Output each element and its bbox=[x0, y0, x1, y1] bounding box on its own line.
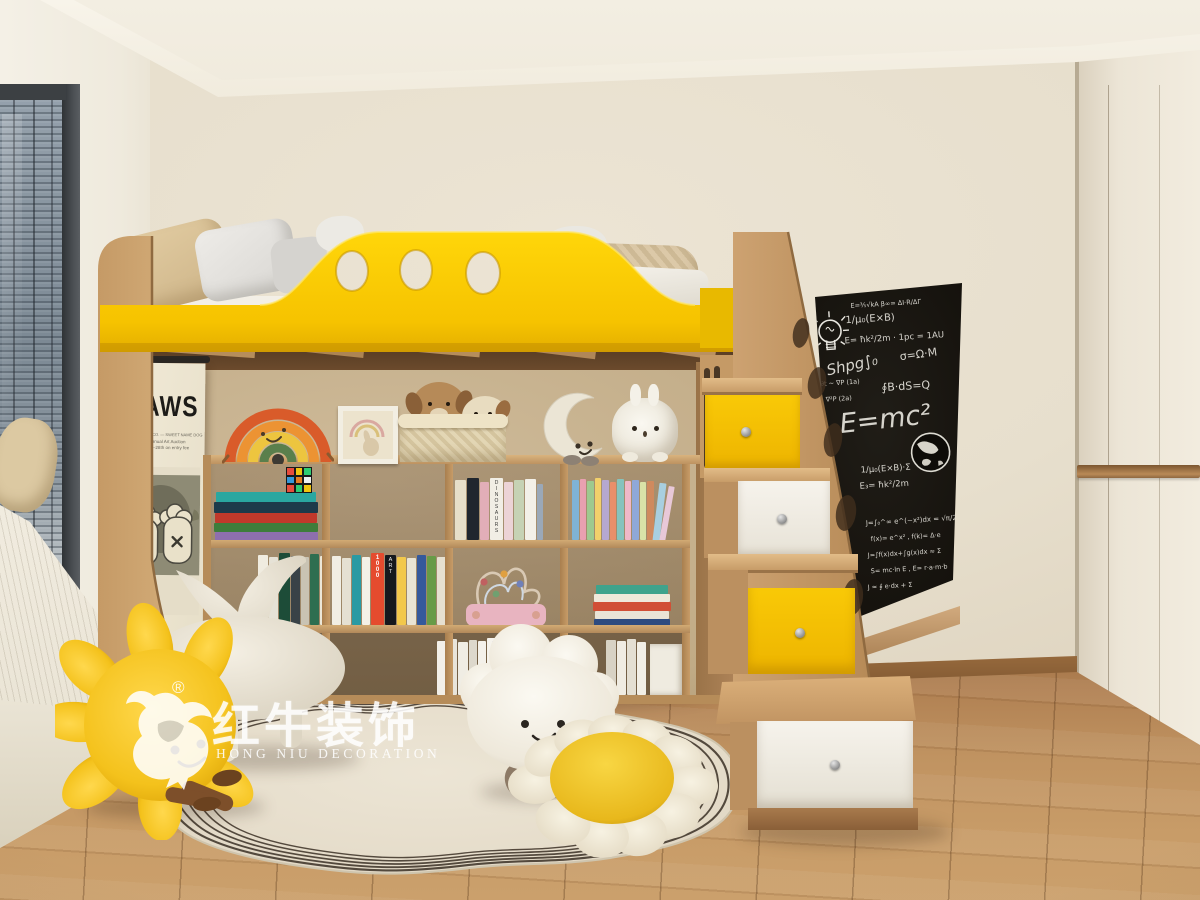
book-spine[interactable] bbox=[637, 642, 646, 695]
book-spine[interactable] bbox=[214, 502, 318, 513]
book-spine[interactable] bbox=[640, 482, 646, 540]
book-spine[interactable] bbox=[215, 513, 317, 523]
rabbit-ear bbox=[648, 384, 659, 406]
book-spine[interactable] bbox=[617, 479, 624, 540]
storage-basket[interactable] bbox=[400, 424, 506, 462]
stair-wood-filler bbox=[704, 482, 738, 558]
book-spine[interactable] bbox=[610, 482, 616, 540]
book-spine[interactable] bbox=[427, 556, 436, 625]
book-spine-label: 1000 bbox=[375, 555, 381, 579]
watermark-brand-en: HONG NIU DECORATION bbox=[216, 746, 440, 762]
shelf-divider bbox=[445, 464, 453, 703]
book-spine[interactable] bbox=[587, 481, 594, 540]
book-spine-dinosaurs[interactable]: DINOSAURS bbox=[490, 478, 503, 540]
book-spine[interactable] bbox=[480, 482, 489, 540]
drawer-knob[interactable] bbox=[830, 760, 840, 770]
stair-plinth bbox=[748, 808, 918, 830]
shelf-divider bbox=[682, 464, 690, 703]
rabbit-eye bbox=[654, 426, 659, 431]
book-spine[interactable] bbox=[525, 479, 536, 540]
flower-pillow[interactable] bbox=[505, 712, 720, 857]
book-spine[interactable] bbox=[625, 481, 631, 540]
book-spine[interactable] bbox=[580, 479, 586, 540]
dog-eye bbox=[446, 402, 450, 406]
book-spine[interactable] bbox=[602, 480, 609, 540]
stair-tread[interactable] bbox=[702, 378, 802, 395]
book-spine-art[interactable]: ART bbox=[385, 555, 396, 625]
rainbow-plush[interactable] bbox=[222, 404, 334, 464]
book-spine-label: ART bbox=[388, 557, 394, 575]
stair-drawer-yellow[interactable] bbox=[705, 395, 800, 469]
book-spine[interactable] bbox=[504, 482, 513, 540]
book-spine[interactable] bbox=[362, 557, 370, 625]
rabbit-eye bbox=[632, 426, 637, 431]
picture-frame[interactable] bbox=[338, 406, 398, 464]
book-spine[interactable] bbox=[455, 480, 466, 540]
rabbit-nose bbox=[643, 431, 647, 437]
book-spine[interactable] bbox=[216, 492, 316, 502]
stair-wood-filler bbox=[708, 570, 748, 674]
drawer-knob[interactable] bbox=[795, 628, 805, 638]
book-spine[interactable] bbox=[514, 480, 524, 540]
watermark-bull-icon bbox=[124, 684, 216, 790]
watermark-registered: ® bbox=[172, 678, 185, 698]
book-spine[interactable] bbox=[537, 484, 543, 540]
rabbit-foot bbox=[622, 452, 638, 462]
dog-eye bbox=[428, 402, 432, 406]
book-spine[interactable] bbox=[595, 478, 601, 540]
book-spine[interactable] bbox=[632, 480, 639, 540]
rabbit-foot bbox=[652, 452, 668, 462]
rabbit-figure[interactable] bbox=[612, 398, 678, 462]
book-spine[interactable] bbox=[467, 478, 479, 540]
book-spine-1000[interactable]: 1000 bbox=[371, 553, 384, 625]
book-spine[interactable] bbox=[397, 557, 406, 625]
bookend[interactable] bbox=[650, 644, 684, 695]
book-spine[interactable] bbox=[572, 480, 579, 540]
book-spine[interactable] bbox=[214, 523, 318, 532]
bedroom-scene: E=⅗√kA β∞= ΔI·R/ΔΓ 1/μ₀(E×B) E= ħk²/2m ·… bbox=[0, 0, 1200, 900]
book-spine-label: DINOSAURS bbox=[494, 480, 500, 534]
drawer-knob[interactable] bbox=[741, 427, 751, 437]
book-spine[interactable] bbox=[593, 602, 671, 611]
bed-guard-rail bbox=[100, 215, 748, 355]
moon-plush[interactable] bbox=[538, 390, 612, 466]
book-spine[interactable] bbox=[417, 555, 426, 625]
basket-rim bbox=[398, 414, 508, 428]
stair-wood-filler bbox=[730, 722, 758, 810]
frame-art bbox=[343, 411, 393, 459]
rabbit-ear bbox=[630, 384, 641, 406]
rubiks-cube[interactable] bbox=[286, 467, 312, 493]
book-spine[interactable] bbox=[407, 558, 416, 625]
book-spine[interactable] bbox=[596, 585, 668, 594]
book-spine[interactable] bbox=[594, 594, 670, 602]
watermark: ® 红牛装饰 HONG NIU DECORATION bbox=[124, 676, 470, 796]
drawer-knob[interactable] bbox=[777, 514, 787, 524]
